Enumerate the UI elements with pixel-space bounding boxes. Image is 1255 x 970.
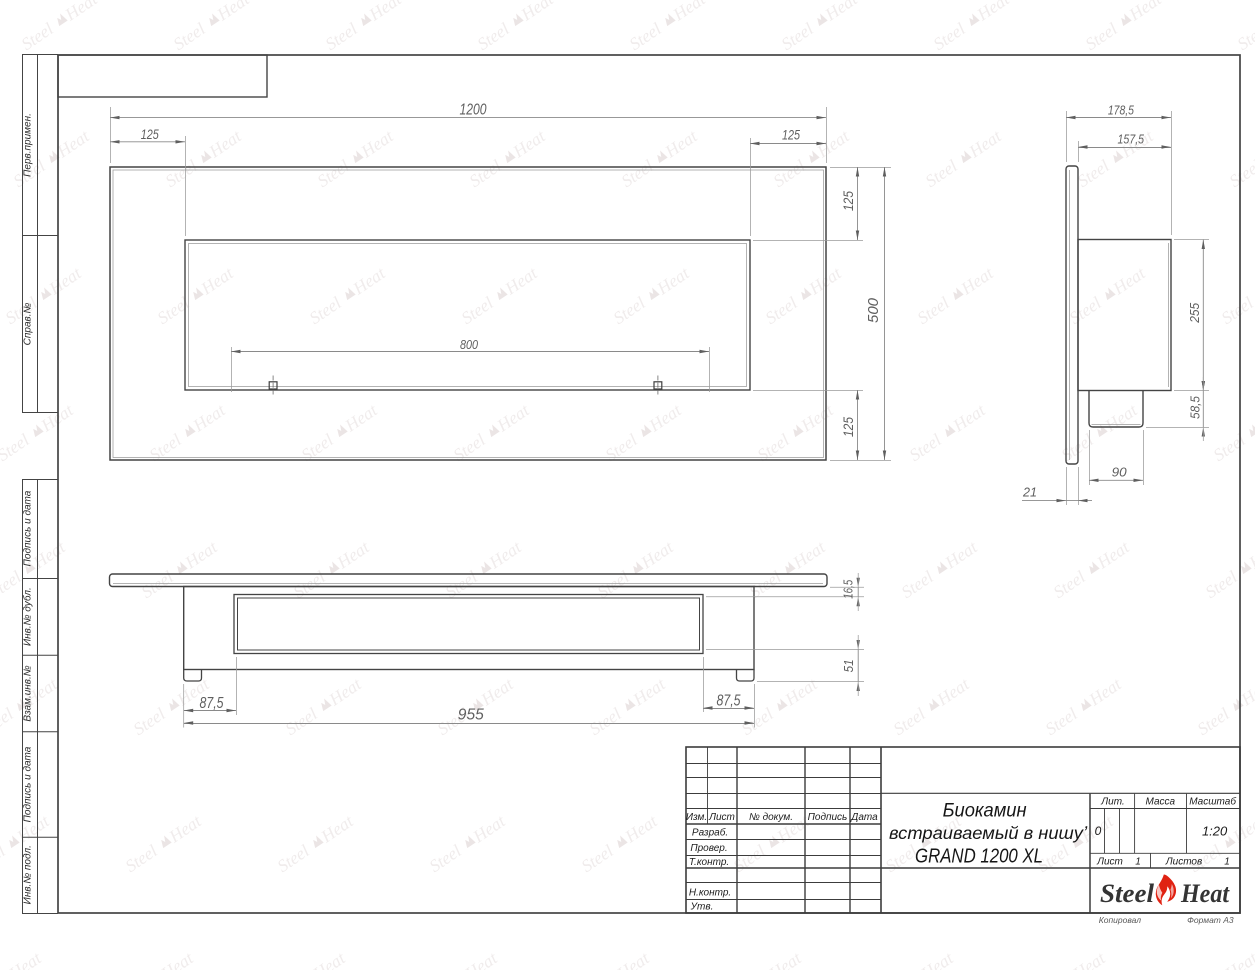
svg-text:0: 0: [1095, 824, 1102, 838]
svg-text:Утв.: Утв.: [690, 902, 714, 913]
svg-text:955: 955: [458, 707, 484, 724]
svg-text:№ докум.: № докум.: [749, 812, 793, 823]
svg-text:Инв.№ подл.: Инв.№ подл.: [23, 845, 34, 904]
svg-text:16,5: 16,5: [842, 580, 856, 599]
svg-text:Steel: Steel: [1100, 879, 1155, 908]
svg-text:87,5: 87,5: [717, 693, 741, 710]
svg-text:800: 800: [460, 337, 479, 352]
svg-text:GRAND 1200 XL: GRAND 1200 XL: [915, 846, 1043, 868]
svg-text:125: 125: [841, 191, 856, 211]
svg-text:1: 1: [1224, 857, 1230, 868]
svg-text:Т.контр.: Т.контр.: [689, 857, 729, 868]
svg-text:125: 125: [841, 417, 856, 437]
svg-text:Копировал: Копировал: [1099, 915, 1141, 925]
svg-text:Лист: Лист: [708, 812, 735, 823]
svg-text:90: 90: [1112, 466, 1127, 480]
svg-text:51: 51: [841, 659, 856, 672]
svg-text:Перв.примен.: Перв.примен.: [23, 113, 34, 177]
svg-text:Масштаб: Масштаб: [1189, 796, 1236, 808]
svg-text:Справ.№: Справ.№: [23, 302, 34, 345]
svg-text:Биокамин: Биокамин: [943, 801, 1028, 822]
svg-text:Подпись и дата: Подпись и дата: [23, 746, 34, 822]
svg-text:Инв.№ дубл.: Инв.№ дубл.: [22, 587, 34, 646]
svg-text:157,5: 157,5: [1118, 133, 1145, 147]
svg-text:Н.контр.: Н.контр.: [689, 888, 731, 899]
svg-text:125: 125: [141, 127, 159, 142]
svg-text:1200: 1200: [460, 102, 487, 119]
svg-text:255: 255: [1187, 302, 1202, 324]
svg-text:Heat: Heat: [1180, 879, 1230, 908]
svg-text:1:20: 1:20: [1202, 824, 1228, 839]
svg-text:87,5: 87,5: [200, 695, 224, 712]
svg-text:500: 500: [865, 297, 882, 323]
svg-text:Формат А3: Формат А3: [1187, 915, 1234, 925]
svg-text:Лит.: Лит.: [1100, 797, 1124, 808]
svg-text:Дата: Дата: [850, 812, 878, 823]
svg-text:178,5: 178,5: [1108, 103, 1134, 117]
svg-text:Взам.инв.№: Взам.инв.№: [23, 665, 34, 721]
svg-text:Изм.: Изм.: [686, 812, 707, 823]
svg-text:Подпись и дата: Подпись и дата: [23, 490, 34, 566]
svg-text:21: 21: [1022, 486, 1037, 500]
svg-text:Масса: Масса: [1146, 797, 1176, 808]
svg-text:Лист: Лист: [1096, 857, 1123, 868]
svg-text:125: 125: [782, 128, 800, 143]
svg-text:Провер.: Провер.: [690, 843, 727, 854]
svg-text:Подпись: Подпись: [808, 812, 848, 823]
svg-text:Разраб.: Разраб.: [692, 827, 728, 839]
svg-text:1: 1: [1135, 857, 1141, 868]
svg-text:встраиваемый в нишуʼ: встраиваемый в нишуʼ: [889, 823, 1088, 843]
svg-text:58,5: 58,5: [1189, 396, 1203, 419]
svg-text:Листов: Листов: [1165, 857, 1202, 868]
